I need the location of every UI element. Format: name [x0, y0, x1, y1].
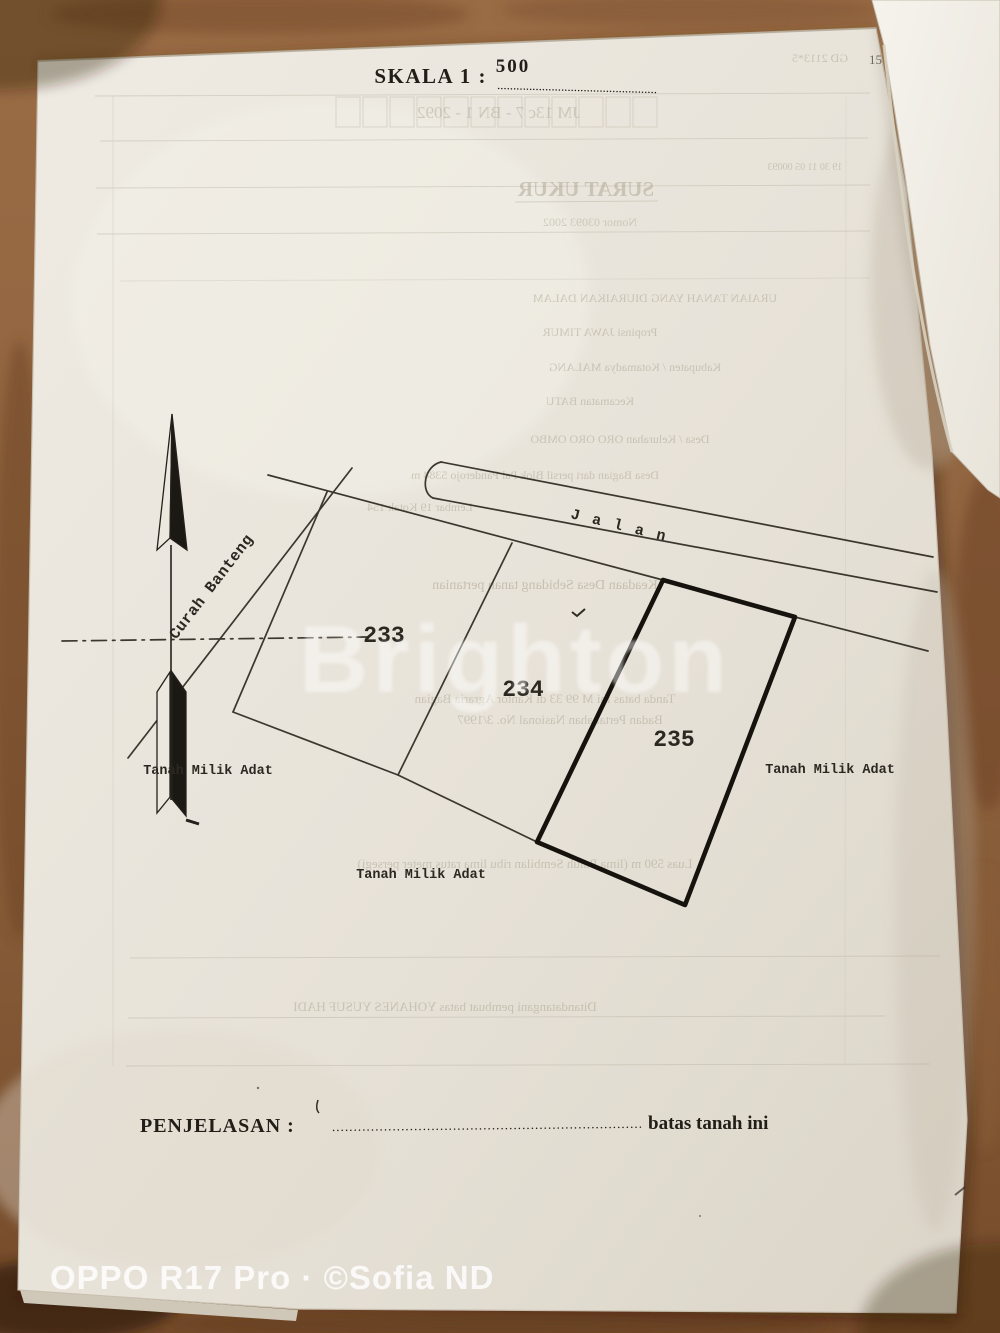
ghost-line: Nomor 03093 2002	[543, 215, 637, 229]
ghost-line: SURAT UKUR	[517, 177, 654, 201]
ghost-line: Propinsi JAWA TIMUR	[543, 325, 658, 339]
ghost-line: Desa / Kelurahan ORO ORO OMBO	[530, 432, 709, 446]
plot-235-label: 235	[653, 727, 694, 753]
footer-suffix: batas tanah ini	[648, 1113, 768, 1134]
footer-label: PENJELASAN :	[140, 1115, 295, 1137]
page-corner-number: 15	[869, 52, 882, 67]
ghost-line: Badan Pertanahan Nasional No. 3/1997	[457, 712, 663, 727]
ghost-line: Keadaan Desa Sebidang tanah pertanian	[432, 578, 657, 593]
ghost-line: Kecamatan BATU	[546, 394, 635, 408]
land-label-left: Tanah Milik Adat	[143, 764, 273, 779]
ghost-line: 19 30 11 05 00093	[768, 162, 843, 173]
ghost-line: Kabupaten / Kotamadya MALANG	[549, 360, 722, 374]
scale-label: SKALA 1 :	[374, 64, 487, 88]
brand-watermark: Brighton	[299, 606, 731, 713]
photo-of-land-survey-document: GD 2113*5 JM 13c 7 - BN 1 - 2092 19 30 1…	[0, 0, 1000, 1333]
document-photo-canvas: GD 2113*5 JM 13c 7 - BN 1 - 2092 19 30 1…	[0, 0, 1000, 1333]
land-label-right: Tanah Milik Adat	[765, 763, 895, 778]
ghost-line: GD 2113*5	[792, 51, 848, 65]
ghost-line: URAIAN TANAH YANG DIURAIKAN DALAM	[532, 291, 777, 305]
land-label-bottom: Tanah Milik Adat	[356, 868, 486, 883]
camera-watermark: OPPO R17 Pro · ©Sofia ND	[50, 1259, 494, 1296]
ghost-line: Ditandatangani pembuat batas YOHANES YUS…	[293, 999, 596, 1014]
scale-value: 500	[496, 56, 531, 77]
ghost-line: JM 13c 7 - BN 1 - 2092	[417, 103, 579, 122]
